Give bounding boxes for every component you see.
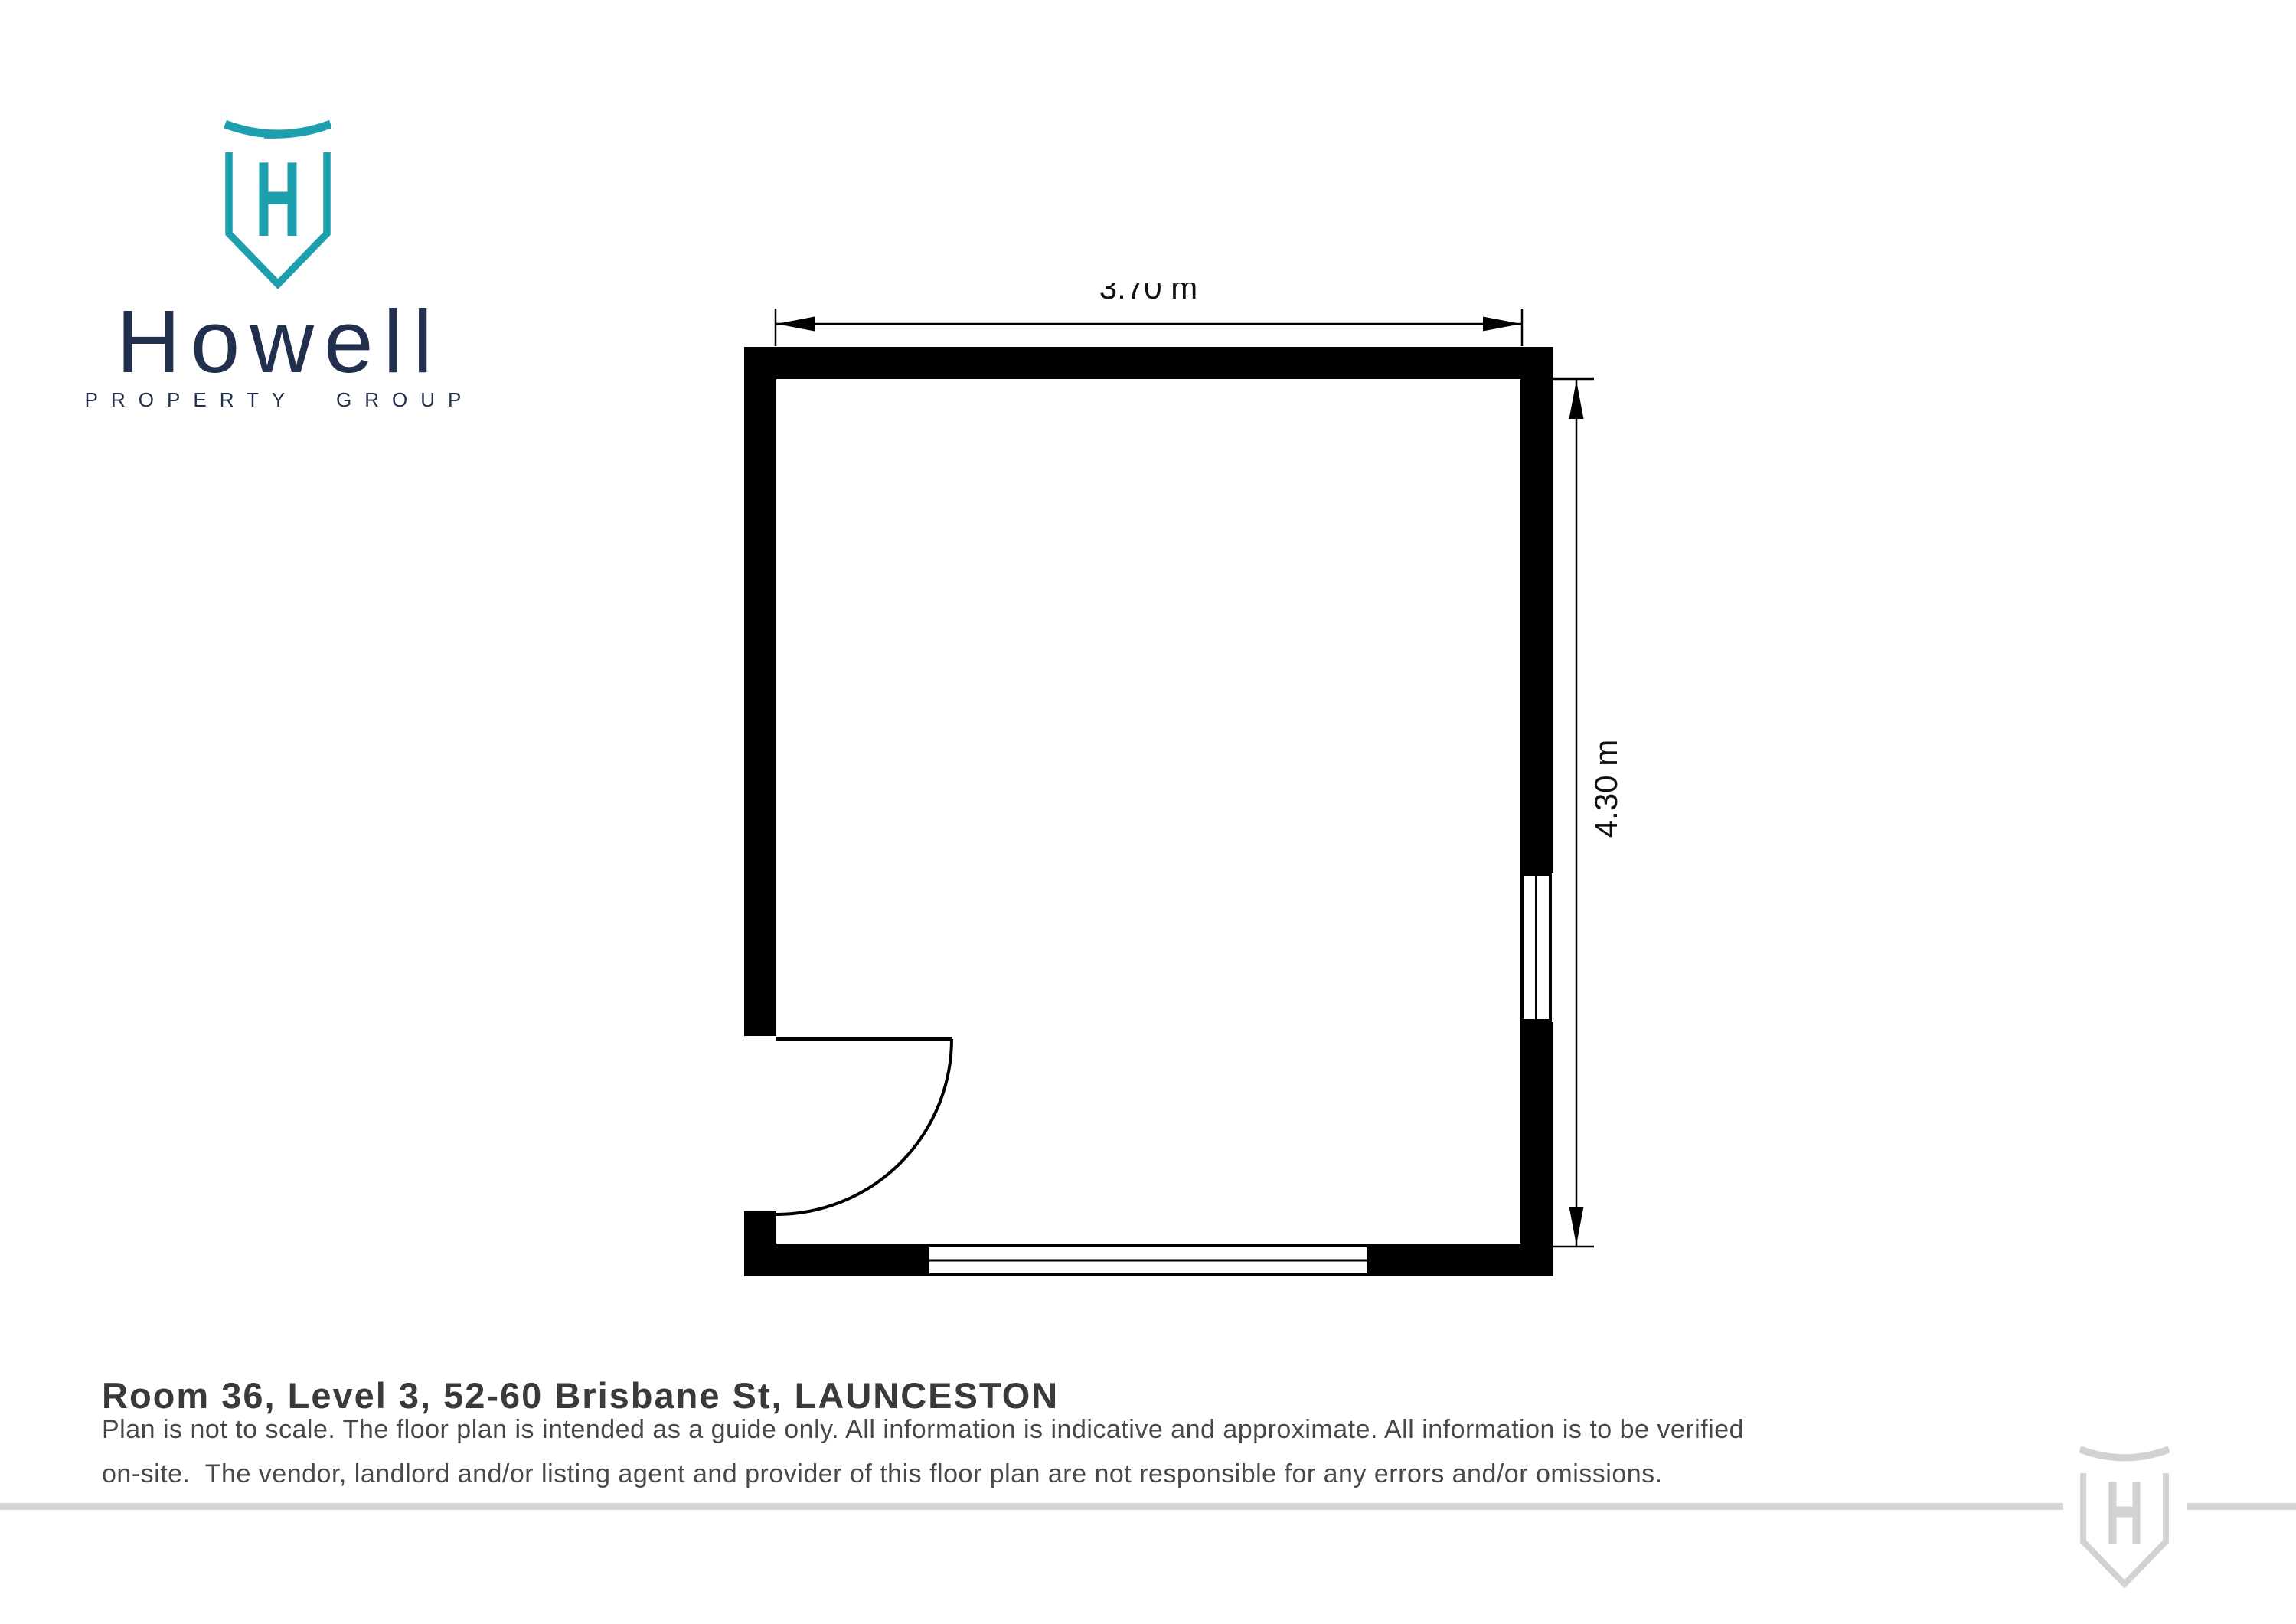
- wall-right-upper: [1520, 379, 1553, 873]
- plan-address-title: Room 36, Level 3, 52-60 Brisbane St, LAU…: [102, 1374, 1059, 1417]
- dim-width-label: 3.70 m: [1099, 283, 1197, 306]
- howell-shield-watermark-icon: H: [2079, 1445, 2170, 1588]
- page: H Howell PROPERTY GROUP 3.70 m 4.3: [0, 0, 2296, 1624]
- floor-plan: 3.70 m 4.30 m: [689, 283, 1669, 1317]
- door-swing-arc: [776, 1039, 952, 1214]
- dim-height-arrow-bottom: [1569, 1207, 1584, 1245]
- watermark-swoosh: [2080, 1449, 2169, 1458]
- disclaimer-line-2: on-site. The vendor, landlord and/or lis…: [102, 1459, 2062, 1489]
- footer-divider-left: [0, 1503, 2063, 1510]
- dim-width-arrow-right: [1483, 317, 1521, 332]
- dim-height-arrow-top: [1569, 381, 1584, 419]
- brand-tagline: PROPERTY GROUP: [50, 388, 509, 412]
- wall-top: [744, 347, 1553, 379]
- wall-bottom-left: [744, 1244, 926, 1276]
- wall-right-lower: [1520, 1022, 1553, 1244]
- watermark-monogram: H: [2105, 1464, 2144, 1564]
- dim-height-label: 4.30 m: [1588, 740, 1624, 838]
- brand-name: Howell: [50, 297, 509, 386]
- logo-monogram: H: [255, 140, 301, 259]
- howell-shield-logo-icon: H: [224, 119, 331, 289]
- dim-width-arrow-left: [776, 317, 815, 332]
- wall-left-upper: [744, 379, 776, 1036]
- footer-divider-right: [2187, 1503, 2296, 1510]
- wall-bottom-right: [1370, 1244, 1553, 1276]
- disclaimer-line-1: Plan is not to scale. The floor plan is …: [102, 1415, 2062, 1445]
